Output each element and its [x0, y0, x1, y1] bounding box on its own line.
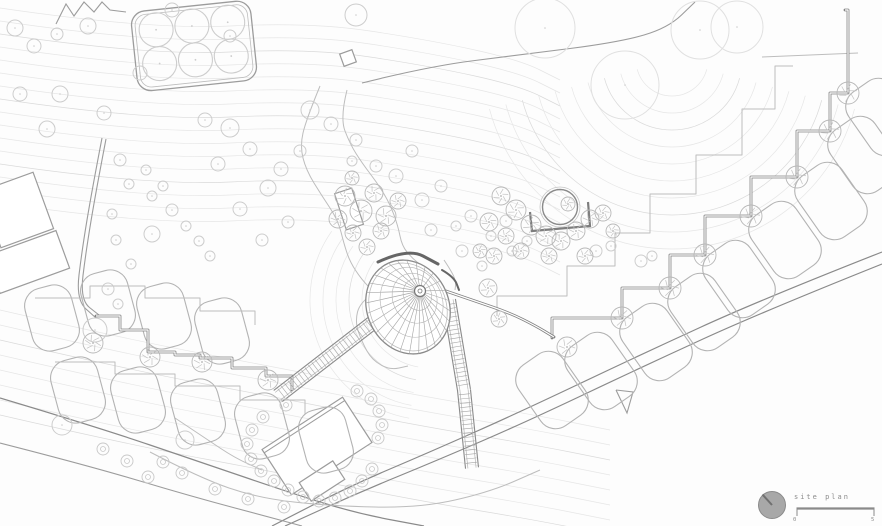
stair-tread	[448, 325, 459, 327]
hatched-tree-texture	[521, 246, 525, 250]
terrace-lot	[21, 281, 84, 355]
vegetation	[7, 0, 859, 513]
tree-center	[430, 229, 432, 231]
shrub-inner	[282, 505, 287, 510]
hatched-tree-texture	[360, 247, 365, 248]
hatched-tree-texture	[496, 256, 499, 260]
tree-center	[395, 175, 397, 177]
hatched-tree-texture	[618, 310, 619, 317]
tree-center	[526, 240, 528, 242]
lot-group-right	[839, 71, 882, 163]
tree-center	[229, 35, 231, 37]
hatched-tree-texture	[582, 258, 585, 262]
tree-center	[107, 288, 109, 290]
hatched-tree-texture	[581, 250, 583, 255]
hatched-tree	[492, 187, 510, 205]
hatched-tree-texture	[355, 234, 356, 239]
scale-start-label: 0	[793, 517, 796, 523]
tree-center	[14, 27, 16, 29]
tree-center	[130, 263, 132, 265]
hatched-tree-texture	[378, 225, 379, 230]
hatched-tree-texture	[567, 199, 569, 203]
terrace-lot	[613, 296, 700, 388]
tree-center	[171, 209, 173, 211]
shrub-inner	[377, 409, 382, 414]
hatched-tree-texture	[398, 196, 402, 199]
light-step-line	[497, 66, 793, 316]
road-line	[343, 90, 422, 266]
hatched-tree-texture	[378, 233, 382, 237]
hatched-tree-center	[548, 255, 550, 257]
shrub-inner	[348, 489, 353, 494]
hatched-tree-texture	[487, 281, 490, 286]
tree-center	[209, 255, 211, 257]
tree	[515, 0, 575, 58]
shrub	[365, 393, 377, 405]
shrub-inner	[245, 442, 250, 447]
stair-tread	[455, 367, 466, 369]
plaza-tree-center	[227, 21, 229, 23]
hatched-tree-center	[373, 192, 375, 194]
hatched-tree-texture	[95, 342, 100, 346]
hatched-tree-texture	[602, 207, 605, 211]
hatched-tree	[258, 370, 278, 390]
hatched-tree-center	[575, 230, 577, 232]
tree-center	[736, 26, 738, 28]
scale-bar: 0 5	[793, 509, 875, 524]
hatched-tree-texture	[604, 212, 609, 213]
hatched-tree-texture	[546, 250, 547, 255]
terrace-lot	[788, 155, 875, 247]
tree-center	[280, 168, 282, 170]
hatched-tree-center	[584, 255, 586, 257]
tree-center	[151, 233, 153, 235]
hatched-tree-texture	[376, 192, 381, 195]
hatched-tree	[480, 213, 498, 231]
lot-group-left	[21, 281, 84, 355]
shrub-inner	[146, 475, 151, 480]
hatched-tree-texture	[383, 232, 384, 237]
shrub	[366, 463, 378, 475]
hatched-tree-center	[567, 203, 569, 205]
hatched-tree-texture	[400, 200, 405, 202]
stair-tread	[456, 371, 467, 373]
lot-group-left	[47, 353, 110, 427]
tree-center	[261, 239, 263, 241]
road-line	[362, 2, 695, 83]
shrub-inner	[180, 471, 185, 476]
contour-line	[621, 74, 723, 113]
tree-center	[103, 112, 105, 114]
tree-center	[330, 123, 332, 125]
hatched-tree-texture	[499, 235, 504, 237]
tree-center	[185, 225, 187, 227]
hatched-tree-texture	[204, 361, 210, 364]
hatched-tree-texture	[369, 248, 371, 253]
stair-rail	[282, 320, 388, 402]
hatched-tree-center	[515, 209, 517, 211]
shrub	[373, 405, 385, 417]
tree-center	[59, 93, 61, 95]
hatched-tree-texture	[506, 231, 510, 234]
shrub-inner	[376, 436, 381, 441]
entry-plaza	[130, 0, 258, 92]
building-group	[340, 50, 357, 67]
shrub-inner	[125, 459, 130, 464]
hatched-tree-texture	[590, 213, 595, 216]
tree-center	[490, 235, 492, 237]
hatched-tree-center	[397, 200, 399, 202]
shrub	[241, 438, 253, 450]
tree-center	[481, 265, 483, 267]
hatched-tree-texture	[482, 251, 484, 255]
tree-center	[145, 169, 147, 171]
shrub	[255, 465, 267, 477]
hatched-tree-texture	[754, 217, 757, 224]
hatched-tree-texture	[355, 232, 360, 233]
hatched-tree-texture	[567, 340, 572, 344]
hatched-tree-texture	[369, 195, 374, 198]
tree-center	[198, 240, 200, 242]
tree-center	[624, 84, 626, 86]
hatched-tree-texture	[500, 189, 503, 194]
tree-center	[119, 159, 121, 161]
hatched-tree-texture	[700, 247, 702, 254]
hatched-tree-texture	[196, 364, 201, 367]
tree-center	[94, 329, 96, 331]
hatched-tree-center	[566, 346, 568, 348]
tree-center	[229, 127, 231, 129]
contour-line	[588, 83, 756, 147]
hatched-tree-texture	[383, 208, 384, 214]
hatched-tree-texture	[489, 252, 492, 256]
hatched-tree-center	[149, 356, 151, 358]
plaza-group	[130, 0, 258, 92]
hatched-tree-texture	[569, 229, 574, 232]
stair-rail-inner	[281, 318, 387, 400]
terrace-lot	[509, 344, 596, 436]
hatched-tree-center	[498, 318, 500, 320]
shrub-inner	[370, 467, 375, 472]
shrub	[176, 467, 188, 479]
hatched-tree-texture	[673, 289, 675, 296]
hatched-tree-texture	[564, 339, 565, 345]
contour-line	[0, 21, 560, 93]
plaza-tree-center	[194, 59, 196, 61]
hatched-tree-texture	[354, 178, 356, 182]
hatched-tree-center	[505, 235, 507, 237]
lot-group-right	[613, 296, 700, 388]
hatched-tree-texture	[488, 215, 491, 220]
hatched-tree-texture	[486, 290, 489, 295]
terrace-lot	[839, 71, 882, 163]
hatched-tree-texture	[503, 230, 504, 235]
hatched-tree-texture	[585, 250, 588, 254]
hatched-tree	[498, 228, 514, 244]
hatched-tree-texture	[391, 200, 396, 202]
stair	[458, 389, 479, 468]
hatched-tree	[513, 243, 529, 259]
hatched-tree-texture	[349, 173, 351, 177]
hatched-tree-texture	[498, 313, 500, 318]
contour-line	[0, 190, 560, 262]
stair-tread	[451, 346, 462, 348]
hatched-tree-texture	[394, 203, 398, 206]
shrub-inner	[246, 497, 251, 502]
hatched-tree-center	[493, 255, 495, 257]
terrace-lot	[696, 233, 783, 325]
roads-and-paths	[0, 2, 882, 526]
hatched-tree-texture	[374, 231, 379, 232]
hatched-tree-center	[344, 195, 346, 197]
hatched-tree	[486, 248, 502, 264]
hatched-tree-texture	[493, 258, 495, 263]
hatched-tree-texture	[851, 93, 855, 99]
contour-line	[604, 78, 739, 130]
hatched-tree	[557, 337, 577, 357]
hatched-tree-texture	[564, 200, 566, 204]
tree-center	[117, 303, 119, 305]
hatched-tree	[567, 222, 585, 240]
hatched-tree-texture	[395, 195, 396, 200]
hatched-tree-texture	[546, 258, 550, 262]
shrub-inner	[213, 487, 218, 492]
legend: site plan 0 5	[759, 492, 875, 524]
stair-rail-inner	[275, 310, 381, 392]
shrub-inner	[369, 397, 374, 402]
hatched-tree	[541, 248, 557, 264]
shrub	[268, 475, 280, 487]
hatched-tree-center	[560, 240, 562, 242]
court-circle	[543, 190, 578, 225]
road-line	[56, 2, 126, 24]
tree-center	[411, 150, 413, 152]
hatched-tree-center	[487, 287, 489, 289]
hatched-tree-texture	[625, 319, 626, 326]
hatched-tree-texture	[508, 235, 513, 237]
hatched-tree	[192, 352, 212, 372]
hatched-tree-texture	[791, 170, 794, 177]
hatched-tree-texture	[361, 205, 367, 208]
hatched-tree-texture	[800, 178, 803, 185]
hatched-tree-texture	[570, 204, 572, 208]
hatched-tree-texture	[612, 226, 615, 230]
hatched-tree-texture	[493, 250, 495, 255]
hatched-tree-texture	[500, 317, 505, 318]
hatched-tree	[577, 248, 593, 264]
hatched-tree-texture	[578, 230, 583, 233]
tree-center	[162, 185, 164, 187]
hatched-tree-texture	[605, 213, 607, 218]
building	[340, 50, 357, 67]
hatched-tree-center	[366, 246, 368, 248]
hatched-tree-texture	[498, 321, 500, 326]
site-plan: site plan 0 5	[0, 0, 882, 526]
lot-group-right	[788, 155, 875, 247]
hatched-tree-texture	[566, 206, 568, 210]
hatched-tree-texture	[331, 218, 336, 220]
tree-center	[440, 185, 442, 187]
contour-line	[0, 47, 560, 119]
stair-tread	[457, 380, 468, 382]
tree-center	[461, 250, 463, 252]
contour-line	[0, 125, 560, 197]
terrace-lot	[558, 325, 645, 417]
tower-hub	[415, 286, 426, 297]
hatched-tree-texture	[578, 256, 583, 257]
shrub	[121, 455, 133, 467]
hatched-tree-texture	[501, 319, 504, 323]
tree-center	[355, 139, 357, 141]
hatched-tree	[345, 171, 359, 185]
hatched-tree-center	[829, 130, 831, 132]
contour-lines	[0, 8, 855, 526]
hatched-tree-center	[704, 254, 706, 256]
tree-center	[61, 424, 63, 426]
road-line	[616, 390, 633, 413]
stair-tread	[454, 363, 465, 365]
hatched-tree-texture	[270, 381, 271, 387]
hatched-tree-center	[267, 379, 269, 381]
hatched-tree-center	[479, 250, 481, 252]
hatched-tree-texture	[538, 233, 543, 236]
hatched-tree-texture	[346, 233, 351, 234]
shrub	[157, 456, 169, 468]
hatched-tree-texture	[263, 383, 268, 387]
hatched-tree-texture	[381, 218, 386, 222]
hatched-tree-texture	[542, 256, 547, 257]
hatched-tree	[365, 184, 383, 202]
stair-tread	[453, 354, 464, 356]
hatched-tree	[595, 205, 611, 221]
hatched-tree-texture	[551, 255, 556, 256]
hatched-tree-texture	[87, 345, 93, 348]
hatched-tree-texture	[350, 180, 353, 184]
shrub-inner	[333, 496, 338, 501]
lot-group-right	[696, 233, 783, 325]
tree-center	[309, 109, 311, 111]
stair-rail	[458, 391, 466, 469]
shrub-inner	[284, 403, 289, 408]
shrub-inner	[161, 460, 166, 465]
hatched-tree-texture	[381, 225, 385, 229]
hatched-tree-center	[500, 195, 502, 197]
hatched-tree-texture	[708, 256, 710, 263]
contour-line	[0, 86, 560, 158]
hatched-tree-texture	[400, 202, 401, 207]
hatched-tree-texture	[508, 237, 509, 242]
shrub	[242, 493, 254, 505]
contour-line	[0, 164, 560, 236]
tree-center	[595, 250, 597, 252]
tree-center	[267, 187, 269, 189]
road-line	[0, 443, 302, 526]
hatched-tree-texture	[518, 210, 521, 216]
stair-tread	[449, 333, 460, 335]
hatched-tree-center	[337, 218, 339, 220]
stair-tread	[449, 329, 460, 331]
shrub	[313, 495, 325, 507]
shrub	[142, 471, 154, 483]
tree-center	[56, 33, 58, 35]
stair-tread	[458, 384, 469, 386]
hatched-tree-center	[351, 177, 353, 179]
hatched-tree-center	[669, 287, 671, 289]
terrace-lot	[133, 279, 196, 353]
hatched-tree	[479, 279, 497, 297]
tree-center	[651, 255, 653, 257]
hatched-tree-texture	[523, 250, 528, 252]
shrub-inner	[355, 389, 360, 394]
hatched-tree-texture	[346, 179, 351, 180]
hatched-tree-texture	[559, 346, 565, 348]
contour-line	[0, 138, 560, 210]
hatched-tree	[606, 224, 620, 238]
lot-group-left	[133, 279, 196, 353]
hatched-tree-texture	[532, 222, 538, 223]
legend-title: site plan	[794, 493, 850, 501]
tree-center	[351, 160, 353, 162]
stair-tread	[451, 342, 462, 344]
road-line	[762, 53, 858, 57]
shrub	[376, 419, 388, 431]
stair-tread	[453, 358, 464, 360]
contour-line	[0, 112, 560, 184]
hatched-tree-texture	[510, 204, 513, 210]
hatched-tree-center	[612, 230, 614, 232]
hatched-tree-texture	[549, 250, 553, 254]
shrub	[246, 424, 258, 436]
hatched-tree-center	[385, 215, 387, 217]
hatched-tree-texture	[368, 246, 373, 247]
hatched-tree-texture	[493, 321, 498, 322]
stair-tread	[450, 337, 461, 339]
hatched-tree	[373, 223, 389, 239]
hatched-tree-center	[360, 210, 362, 212]
hatched-tree	[561, 197, 575, 211]
road-line	[272, 252, 882, 526]
shrub	[209, 483, 221, 495]
shrub	[97, 443, 109, 455]
hatched-tree-texture	[556, 243, 561, 246]
tree-center	[115, 239, 117, 241]
hatched-tree-texture	[496, 191, 499, 196]
tree-center	[421, 199, 423, 201]
hatched-tree-texture	[746, 209, 749, 216]
hatched-tree	[491, 311, 507, 327]
hatched-tree-texture	[363, 242, 365, 247]
hatched-tree-texture	[388, 217, 389, 223]
shrub	[257, 411, 269, 423]
hatched-tree-center	[530, 224, 532, 226]
hatched-tree-texture	[484, 216, 487, 221]
spiral-tower	[351, 246, 465, 367]
hatched-tree-texture	[194, 360, 200, 363]
hatched-tree-texture	[353, 177, 358, 178]
hatched-tree-texture	[592, 220, 593, 226]
shrub-inner	[380, 423, 385, 428]
hatched-tree-texture	[364, 249, 367, 253]
hatched-tree-texture	[350, 235, 354, 239]
hatched-tree-texture	[483, 283, 486, 288]
tree-center	[610, 245, 612, 247]
hatched-tree	[83, 333, 103, 353]
hatched-tree-center	[92, 342, 94, 344]
tree-center	[217, 163, 219, 165]
hatched-tree-texture	[270, 379, 276, 382]
tree-center	[355, 14, 357, 16]
hatched-tree	[359, 239, 375, 255]
